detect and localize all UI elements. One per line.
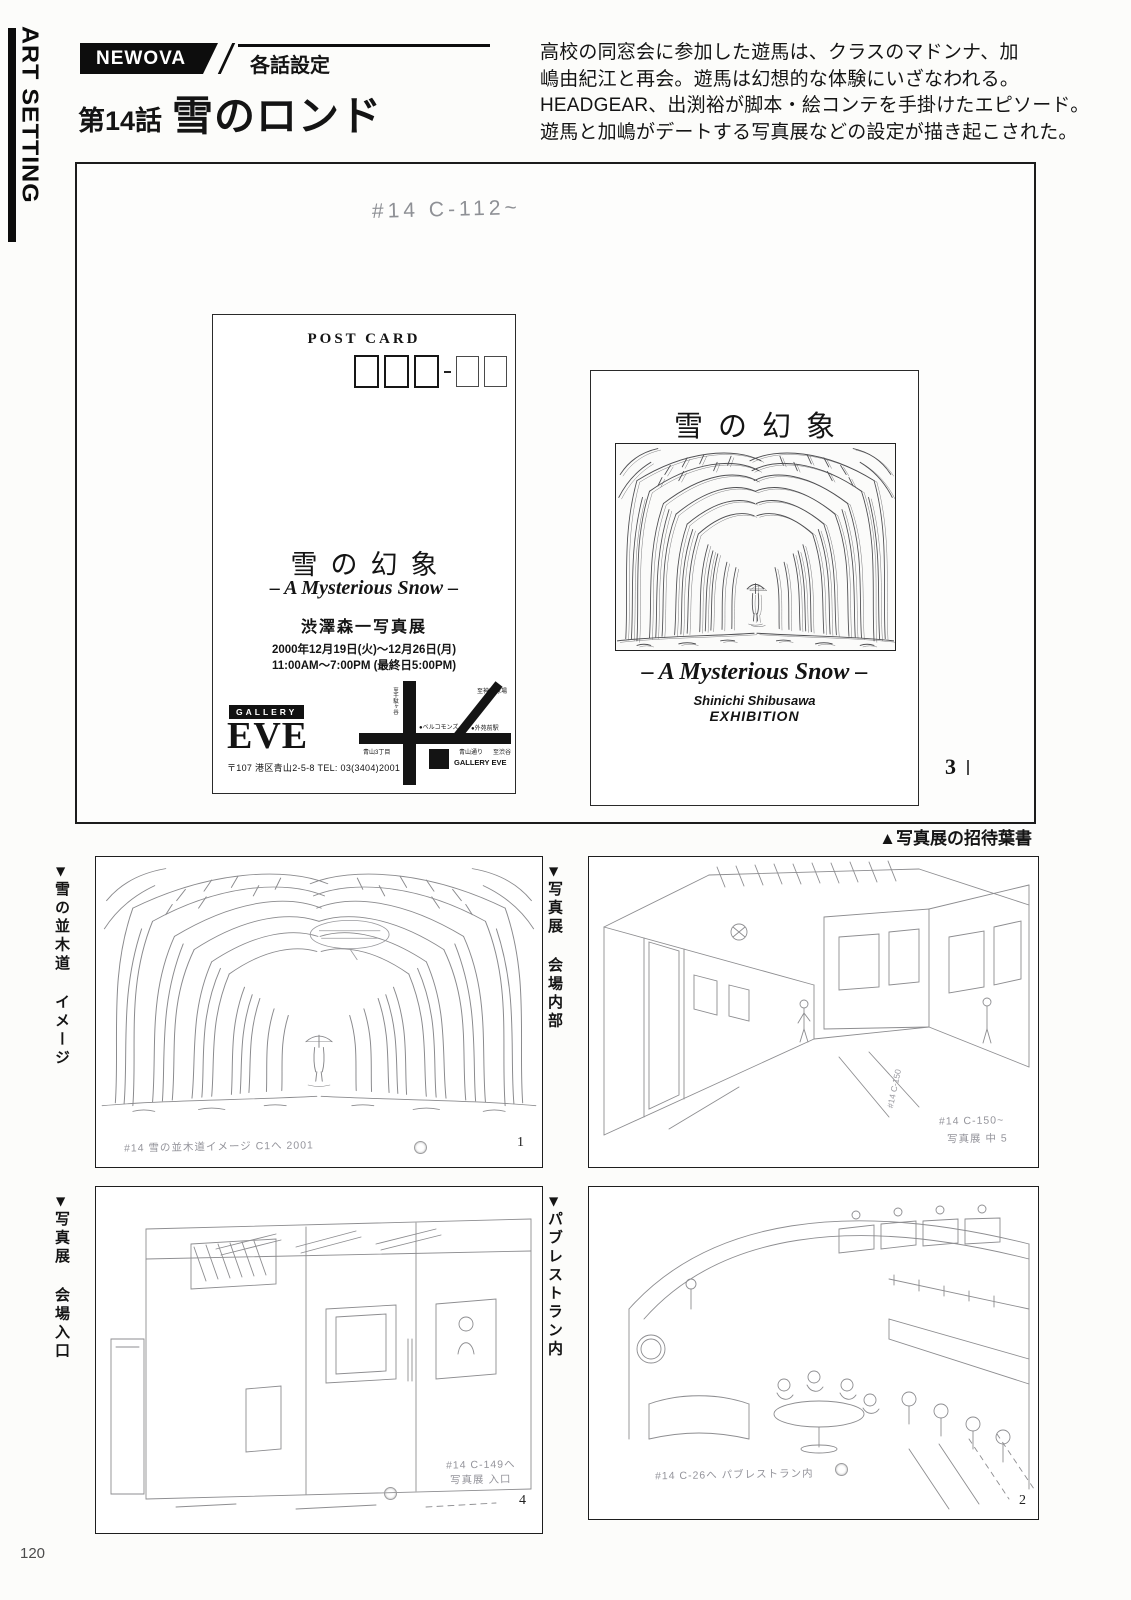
series-badge-label: NEWOVA [80,48,186,70]
map-label-to-jingu-stadium: 至神宮球場 [477,687,507,695]
postcard-photo [615,443,896,651]
zip-box [354,355,379,388]
panel-pub-restaurant: #14 C-26へ パブレストラン内 2 [588,1186,1039,1520]
artbook-page: ART SETTING NEWOVA 各話設定 第14話 雪のロンド 高校の同窓… [0,0,1131,1600]
series-badge: NEWOVA [80,43,218,74]
handwritten-note: 写真展 中 5 [947,1130,1008,1146]
synopsis-line: HEADGEAR、出渕裕が脚本・絵コンテを手掛けたエピソード。 [540,93,1112,120]
handwritten-note: #14 C-150~ [939,1114,1004,1127]
exhibition-title-en: – A Mysterious Snow – [591,659,918,686]
snow-avenue-photo-sketch [616,444,895,650]
exhibition-title-en: – A Mysterious Snow – [213,577,515,600]
artist-name: Shinichi Shibusawa [591,693,918,708]
zipcode-boxes [354,355,507,388]
exhibition-word: EXHIBITION [591,708,918,724]
handwritten-note: #14 C-149へ [446,1456,516,1472]
sidebar-rule [8,28,16,242]
map-label-gallery-eve: GALLERY EVE [454,758,507,767]
zip-box [384,355,409,388]
panel-caption-pub-restaurant: ▶ パブレストラン内 [547,1196,562,1359]
exhibition-hours: 11:00AM～7:00PM (最終日5:00PM) [213,657,515,673]
postcard-front: POST CARD 雪の幻象 – A Mysterious Snow – 渋澤森… [212,314,516,794]
triangle-marker-icon: ▶ [548,867,560,876]
page-title: 第14話 雪のロンド [78,82,382,142]
map-label-to-shibuya: 至渋谷 [493,748,511,756]
episode-number: 第14話 [78,99,162,138]
panel-caption-exhibition-entrance: ▶ 写真展 会場入口 [54,1196,69,1361]
panel-caption-snow-avenue: ▶ 雪の並木道 イメージ [54,866,69,1068]
badge-rule [238,44,490,47]
zip-box [414,355,439,388]
episode-title: 雪のロンド [172,82,382,142]
triangle-marker-icon: ▶ [548,1197,560,1206]
triangle-marker-icon: ▶ [55,1197,67,1206]
approval-stamp-icon [384,1487,397,1500]
zip-box [484,356,507,387]
section-label: 各話設定 [250,49,330,78]
panel-snow-avenue: #14 雪の並木道イメージ C1へ 2001 1 [95,856,543,1168]
sidebar-label: ART SETTING [16,26,43,246]
handwritten-note: #14 雪の並木道イメージ C1へ 2001 [124,1137,314,1155]
map-label-to-sendagaya: 至千駄ヶ谷 [392,687,399,716]
synopsis-line: 嶋由紀江と再会。遊馬は幻想的な体験にいざなわれる。 [540,67,1112,94]
plate-frame: #14 C-112~ POST CARD 雪の幻象 – A Mysterious… [75,162,1036,824]
approval-stamp-icon [835,1463,848,1476]
handwritten-cut-note: #14 C-112~ [372,196,521,224]
plate-number-mark [967,760,969,775]
sheet-number: 4 [519,1493,526,1509]
approval-stamp-icon [414,1141,427,1154]
postcard-back: 雪の幻象 – A Mysterious Snow – Shinichi Shib… [590,370,919,806]
map-label-bell-commons: ●ベルコモンズ [419,723,458,731]
sheet-number: 2 [1019,1493,1026,1509]
panel-exhibition-entrance: #14 C-149へ 写真展 入口 4 [95,1186,543,1534]
postcard-header: POST CARD [213,331,515,348]
synopsis-line: 高校の同窓会に参加した遊馬は、クラスのマドンナ、加 [540,40,1112,67]
exhibition-title-jp: 雪の幻象 [591,403,918,445]
handwritten-note: #14 C-26へ パブレストラン内 [655,1466,814,1484]
gallery-map: 至千駄ヶ谷 ●ベルコモンズ 至神宮球場 ●外苑前駅 青山3丁目 青山通り 至渋谷… [359,681,511,785]
plate-number: 3 [945,754,956,780]
triangle-marker-icon: ▶ [55,867,67,876]
panel-caption-exhibition-interior: ▶ 写真展 会場内部 [547,866,562,1031]
zip-box [456,356,479,387]
map-label-aoyama-dori: 青山通り [459,748,483,756]
synopsis-line: 遊馬と加嶋がデートする写真展などの設定が描き起こされた。 [540,120,1112,147]
badge-slash-decoration [218,43,235,74]
page-number: 120 [20,1545,45,1562]
sheet-number: 1 [517,1135,524,1151]
snow-avenue-sketch [100,863,538,1117]
map-label-aoyama-3chome: 青山3丁目 [363,748,390,756]
gallery-logo-name: EVE [227,717,308,755]
map-label-gaienmae-station: ●外苑前駅 [471,724,499,732]
panel-exhibition-interior: #14 C-150 #14 C-150~ 写真展 中 5 [588,856,1039,1168]
zip-dash [444,371,451,373]
synopsis: 高校の同窓会に参加した遊馬は、クラスのマドンナ、加 嶋由紀江と再会。遊馬は幻想的… [540,40,1112,146]
exhibition-dates: 2000年12月19日(火)～12月26日(月) [213,641,515,657]
handwritten-note: 写真展 入口 [450,1471,512,1487]
exhibition-name: 渋澤森一写真展 [213,613,515,637]
plate-caption: ▲写真展の招待葉書 [75,824,1032,849]
